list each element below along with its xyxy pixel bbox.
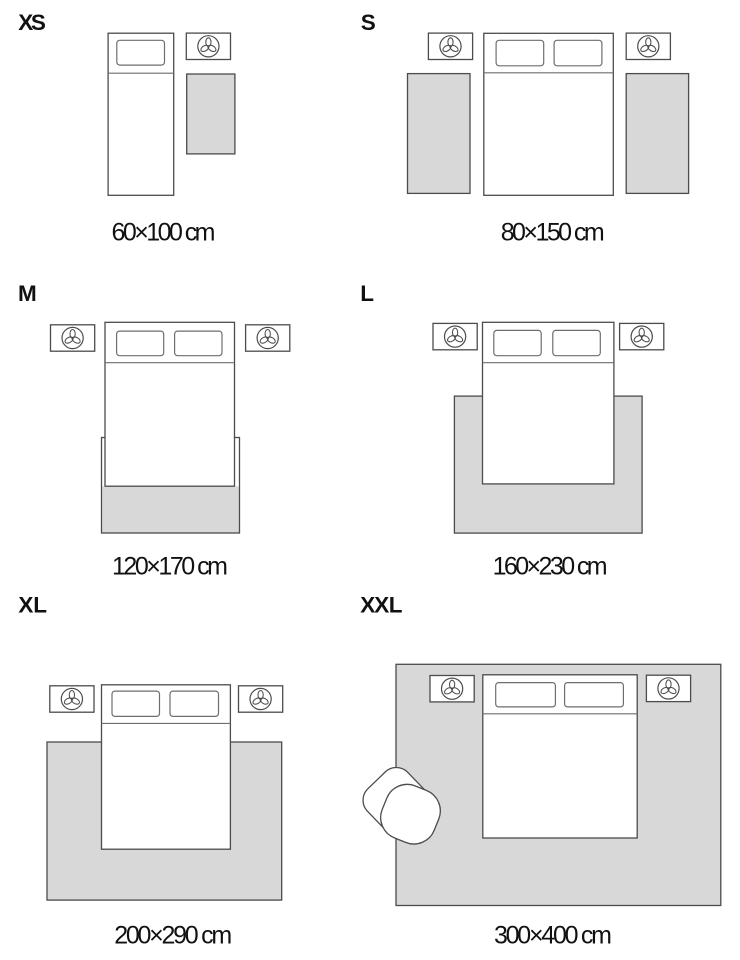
svg-text:XL: XL — [18, 593, 47, 618]
svg-text:300×400 cm: 300×400 cm — [494, 922, 612, 950]
svg-text:80×150 cm: 80×150 cm — [501, 219, 605, 247]
svg-text:XS: XS — [18, 10, 46, 35]
svg-text:200×290 cm: 200×290 cm — [114, 922, 232, 950]
svg-text:L: L — [360, 281, 374, 306]
svg-text:XXL: XXL — [360, 593, 403, 618]
svg-text:S: S — [361, 10, 376, 35]
svg-text:M: M — [18, 281, 37, 306]
svg-text:120×170 cm: 120×170 cm — [112, 553, 228, 581]
svg-text:160×230 cm: 160×230 cm — [493, 553, 608, 581]
svg-text:60×100 cm: 60×100 cm — [112, 219, 216, 247]
